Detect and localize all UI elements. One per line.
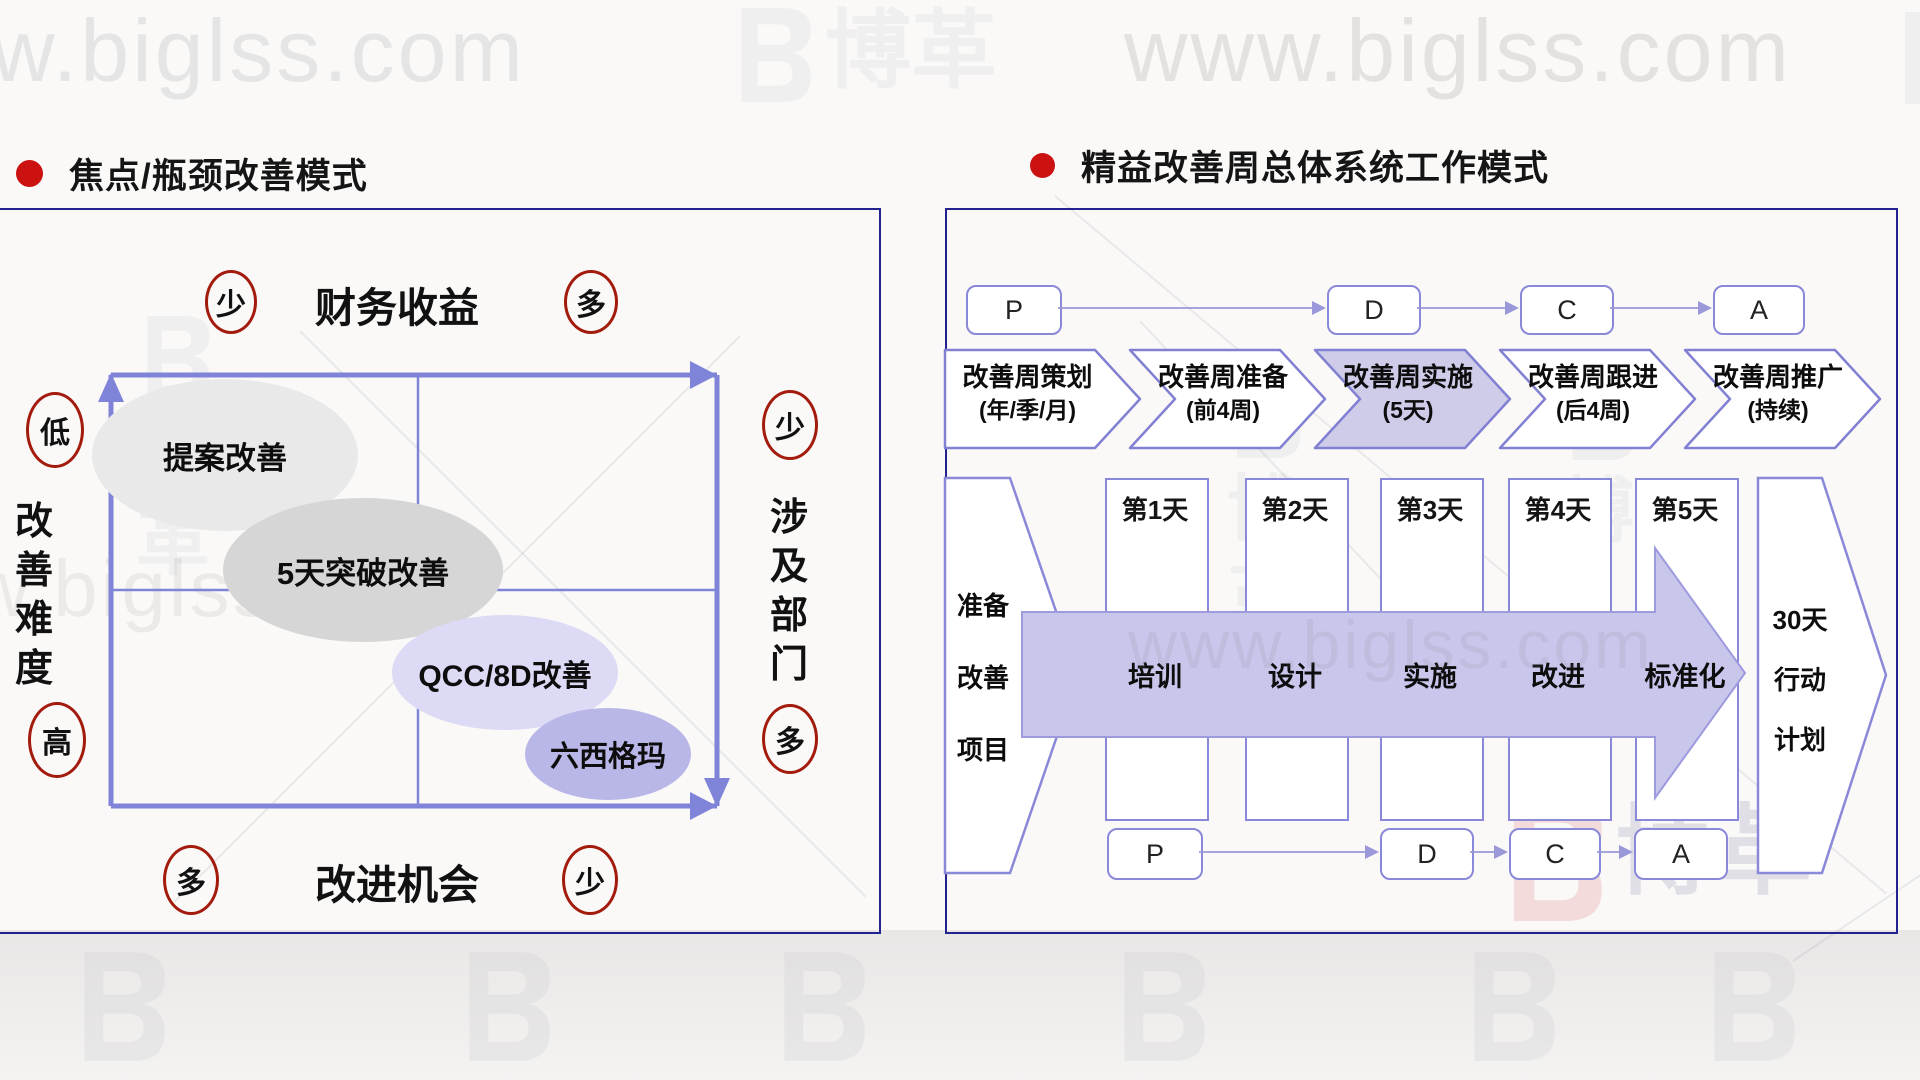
phase-2-label: 改善周准备 (前4周) — [1140, 360, 1306, 426]
qty-circle-many: 多 — [163, 845, 219, 915]
phase-period: (前4周) — [1140, 394, 1306, 426]
activity-standardize: 标准化 — [1633, 655, 1737, 694]
pdca-bottom-a: A — [1634, 828, 1728, 880]
biglss-logo-icon — [1893, 12, 1920, 104]
activity-implement: 实施 — [1378, 655, 1482, 694]
phase-period: (持续) — [1695, 394, 1861, 426]
qty-circle-low: 低 — [26, 392, 84, 468]
pdca-top-a: A — [1713, 285, 1805, 335]
day-5-label: 第5天 — [1633, 490, 1737, 527]
phase-3-label: 改善周实施 (5天) — [1325, 360, 1491, 426]
pdca-top-c: C — [1520, 285, 1614, 335]
phase-name: 改善周准备 — [1140, 360, 1306, 394]
left-axis-label: 改善难度 — [11, 498, 57, 694]
right-axis-label: 涉及部门 — [766, 494, 812, 690]
biglss-logo-watermark: 博革 — [729, 8, 997, 102]
right-panel-title: 精益改善周总体系统工作模式 — [1081, 140, 1549, 191]
prepare-line-3: 项目 — [940, 730, 1026, 767]
plan-line-3: 计划 — [1752, 720, 1848, 757]
pdca-bottom-d: D — [1380, 828, 1474, 880]
prepare-line-1: 准备 — [940, 586, 1026, 623]
day-column-1 — [1105, 478, 1209, 821]
phase-name: 改善周策划 — [945, 360, 1110, 394]
day-4-label: 第4天 — [1506, 490, 1610, 527]
phase-1-label: 改善周策划 (年/季/月) — [945, 360, 1110, 426]
left-title-row: 焦点/瓶颈改善模式 — [16, 148, 368, 199]
activity-training: 培训 — [1103, 655, 1207, 694]
left-panel-title: 焦点/瓶颈改善模式 — [69, 148, 368, 199]
day-column-5 — [1635, 478, 1739, 821]
qty-circle-few: 少 — [562, 845, 618, 915]
red-bullet-icon — [16, 160, 43, 187]
day-column-2 — [1245, 478, 1349, 821]
activity-design: 设计 — [1243, 655, 1347, 694]
pdca-bottom-p: P — [1107, 828, 1203, 880]
day-1-label: 第1天 — [1103, 490, 1207, 527]
prepare-line-2: 改善 — [940, 658, 1026, 695]
plan-line-1: 30天 — [1752, 600, 1848, 637]
qty-circle-many: 多 — [564, 270, 618, 334]
phase-4-label: 改善周跟进 (后4周) — [1510, 360, 1676, 426]
red-bullet-icon — [1030, 153, 1055, 178]
phase-name: 改善周跟进 — [1510, 360, 1676, 394]
pdca-top-d: D — [1327, 285, 1421, 335]
slide: www.biglss.com 博革 博 革 博 革 博 — [0, 0, 1920, 1080]
right-title-row: 精益改善周总体系统工作模式 — [1030, 140, 1549, 191]
watermark-text: www.biglss.com — [1124, 0, 1792, 102]
day-column-4 — [1508, 478, 1612, 821]
qty-circle-many: 多 — [762, 704, 818, 774]
biglss-logo-icon — [729, 8, 811, 102]
pdca-top-p: P — [966, 285, 1062, 335]
qty-circle-few: 少 — [205, 270, 257, 334]
bottom-axis-label: 改进机会 — [277, 851, 517, 911]
day-3-label: 第3天 — [1378, 490, 1482, 527]
activity-improve: 改进 — [1506, 655, 1610, 694]
pdca-bottom-c: C — [1509, 828, 1601, 880]
logo-text: 博革 — [825, 8, 997, 94]
phase-name: 改善周实施 — [1325, 360, 1491, 394]
day-2-label: 第2天 — [1243, 490, 1347, 527]
watermark-text: www.biglss.com — [0, 0, 526, 102]
phase-period: (5天) — [1325, 394, 1491, 426]
day-column-3 — [1380, 478, 1484, 821]
phase-name: 改善周推广 — [1695, 360, 1861, 394]
qty-circle-few: 少 — [762, 390, 818, 460]
phase-period: (年/季/月) — [945, 394, 1110, 426]
top-axis-label: 财务收益 — [277, 274, 517, 334]
slide-bottom-band — [0, 930, 1920, 1080]
qty-circle-high: 高 — [28, 702, 86, 778]
bubble-six-sigma: 六西格玛 — [525, 708, 691, 800]
phase-period: (后4周) — [1510, 394, 1676, 426]
biglss-logo-watermark — [1893, 12, 1920, 104]
plan-line-2: 行动 — [1752, 660, 1848, 697]
phase-5-label: 改善周推广 (持续) — [1695, 360, 1861, 426]
